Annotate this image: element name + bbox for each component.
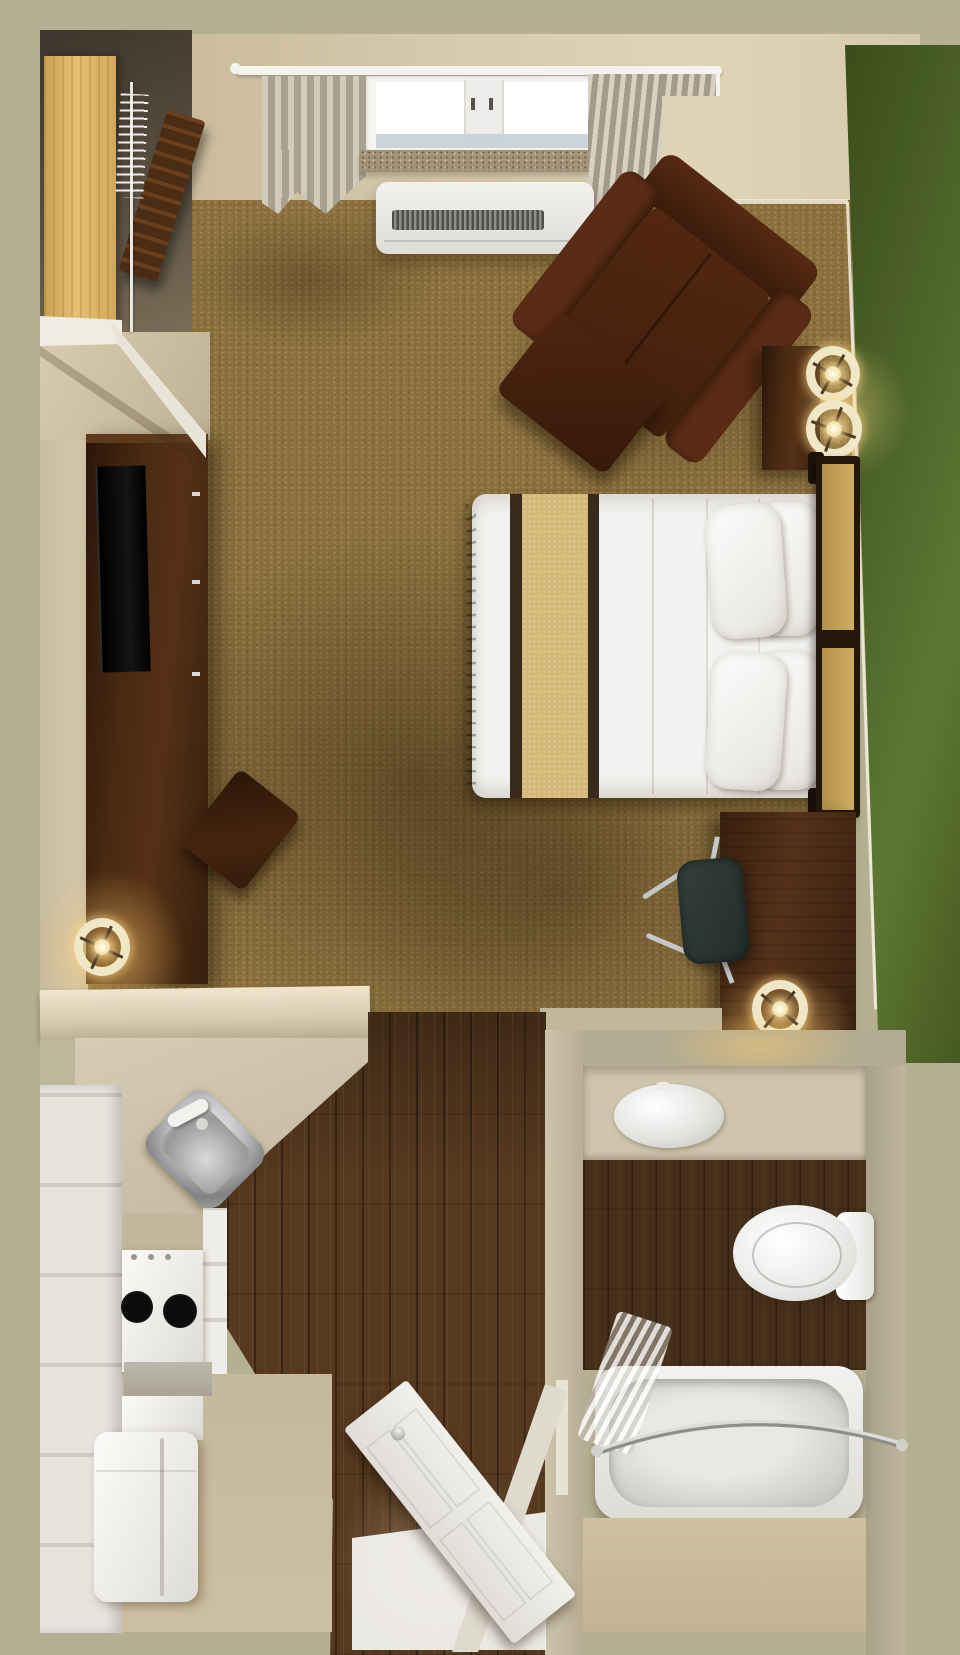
shower-rod-bracket — [591, 1445, 603, 1457]
floorplan-canvas — [0, 0, 960, 1655]
wall-shelf-return — [110, 320, 206, 458]
wall-shelf — [40, 316, 122, 346]
overlay-graphics — [0, 0, 960, 1655]
shower-rod-bracket — [896, 1439, 908, 1451]
